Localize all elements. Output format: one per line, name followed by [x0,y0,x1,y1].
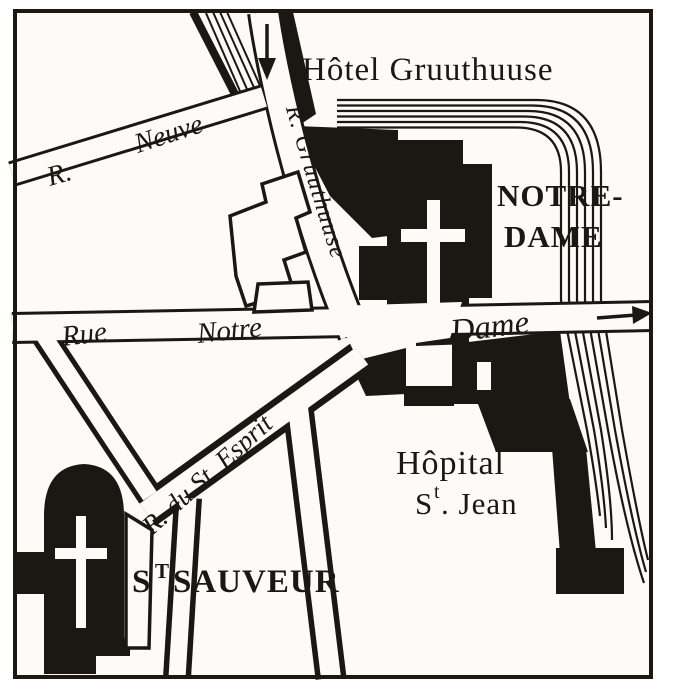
label-hopital-rest: . Jean [441,486,518,521]
label-notre-dame-line2: DAME [504,219,603,254]
label-hopital-s: S [415,486,432,521]
label-hopital-sup: t [434,481,440,503]
label-hopital-line1: Hôpital [396,445,505,482]
st-sauveur-church-block [44,464,130,674]
building-block [556,548,624,594]
church-cross-icon [427,200,440,308]
st-sauveur-transept [16,552,46,594]
label-st-sauveur-s: S [132,564,151,600]
church-cross-icon [401,229,465,242]
label-street-rue: Rue [59,316,109,353]
label-st-sauveur-sup: T [155,559,170,583]
building-outline [254,282,312,312]
church-cross-icon [55,548,107,559]
label-st-sauveur-rest: SAUVEUR [173,564,340,600]
church-cross-icon [76,516,86,628]
building-block [404,386,454,406]
street-rue-notre-dame [12,316,652,328]
label-hotel-gruuthuuse: Hôtel Gruuthuuse [302,52,554,88]
map-canvas: Hôtel Gruuthuuse NOTRE- DAME Hôpital S t… [0,0,674,700]
map-figure: Hôtel Gruuthuuse NOTRE- DAME Hôpital S t… [0,0,674,700]
label-notre-dame-line1: NOTRE- [497,178,624,213]
building-courtyard [477,362,491,390]
